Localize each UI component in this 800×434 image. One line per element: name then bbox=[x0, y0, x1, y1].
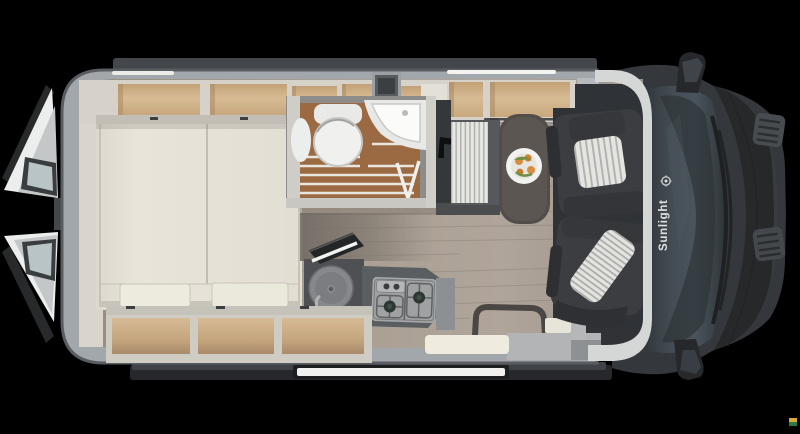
svg-text:Sunlight: Sunlight bbox=[658, 199, 670, 251]
